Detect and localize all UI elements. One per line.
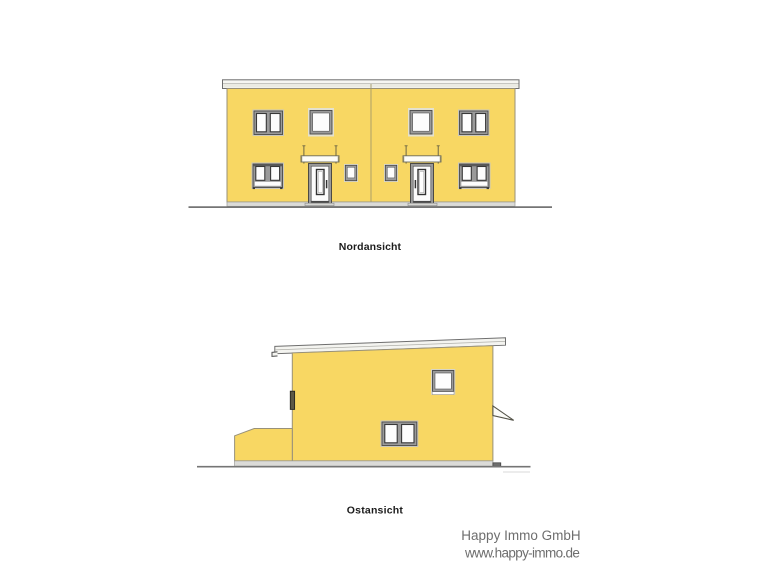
svg-text:www.happy-immo.de: www.happy-immo.de: [464, 546, 579, 561]
svg-text:Nordansicht: Nordansicht: [339, 241, 402, 253]
svg-text:Ostansicht: Ostansicht: [347, 505, 404, 517]
svg-text:Happy Immo GmbH: Happy Immo GmbH: [461, 528, 580, 543]
